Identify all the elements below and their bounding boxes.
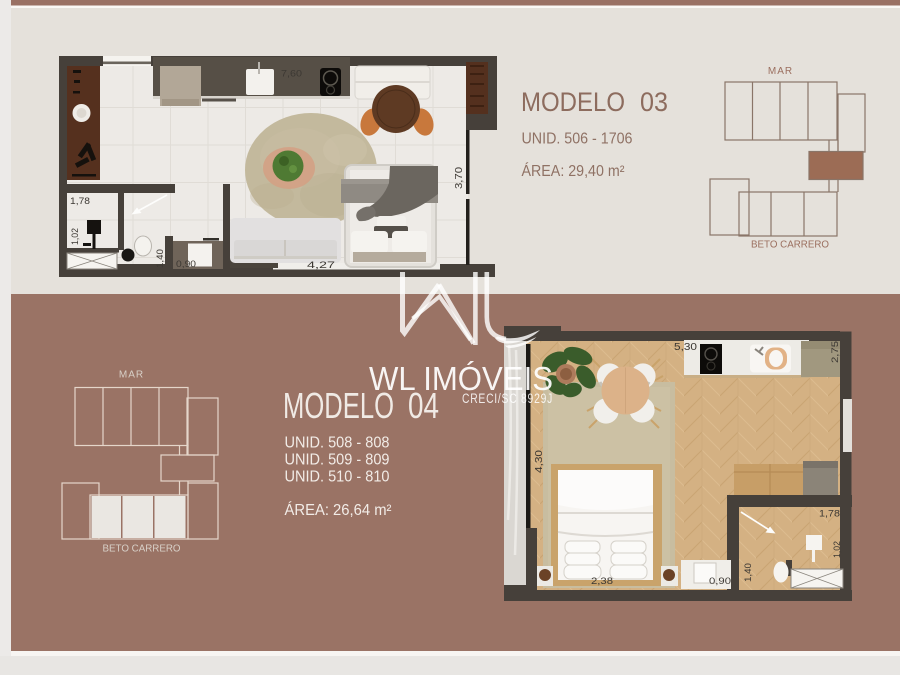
svg-text:UNID. 508 - 808: UNID. 508 - 808 bbox=[285, 435, 390, 452]
svg-text:2,38: 2,38 bbox=[591, 576, 613, 586]
svg-text:1,02: 1,02 bbox=[832, 541, 842, 558]
svg-text:ÁREA: 29,40 m²: ÁREA: 29,40 m² bbox=[522, 163, 625, 180]
svg-text:ÁREA: 26,64 m²: ÁREA: 26,64 m² bbox=[285, 502, 392, 519]
svg-text:4,27: 4,27 bbox=[307, 260, 335, 270]
svg-text:MODELO: MODELO bbox=[521, 87, 625, 117]
svg-text:1,40: 1,40 bbox=[743, 563, 753, 582]
svg-text:03: 03 bbox=[640, 87, 668, 117]
svg-text:UNID. 510 - 810: UNID. 510 - 810 bbox=[285, 469, 390, 486]
svg-text:UNID. 509 - 809: UNID. 509 - 809 bbox=[285, 452, 390, 469]
svg-text:UNID. 506 - 1706: UNID. 506 - 1706 bbox=[522, 131, 633, 148]
svg-text:1,02: 1,02 bbox=[70, 228, 80, 245]
svg-text:MAR: MAR bbox=[119, 370, 144, 381]
svg-text:2,75: 2,75 bbox=[830, 341, 840, 363]
svg-text:1,78: 1,78 bbox=[819, 509, 840, 519]
svg-text:0,90: 0,90 bbox=[176, 259, 196, 269]
svg-text:1,78: 1,78 bbox=[70, 196, 90, 206]
svg-text:3,70: 3,70 bbox=[454, 167, 465, 189]
svg-text:5,30: 5,30 bbox=[674, 342, 698, 353]
svg-text:7,60: 7,60 bbox=[281, 69, 302, 79]
svg-text:0,90: 0,90 bbox=[709, 576, 731, 586]
svg-text:4,30: 4,30 bbox=[534, 449, 545, 473]
svg-text:BETO CARRERO: BETO CARRERO bbox=[103, 543, 181, 555]
svg-text:CRECI/SC 8929J: CRECI/SC 8929J bbox=[462, 391, 553, 406]
svg-text:BETO CARRERO: BETO CARRERO bbox=[751, 239, 829, 251]
svg-text:MAR: MAR bbox=[768, 66, 793, 77]
svg-text:1,40: 1,40 bbox=[155, 249, 165, 268]
